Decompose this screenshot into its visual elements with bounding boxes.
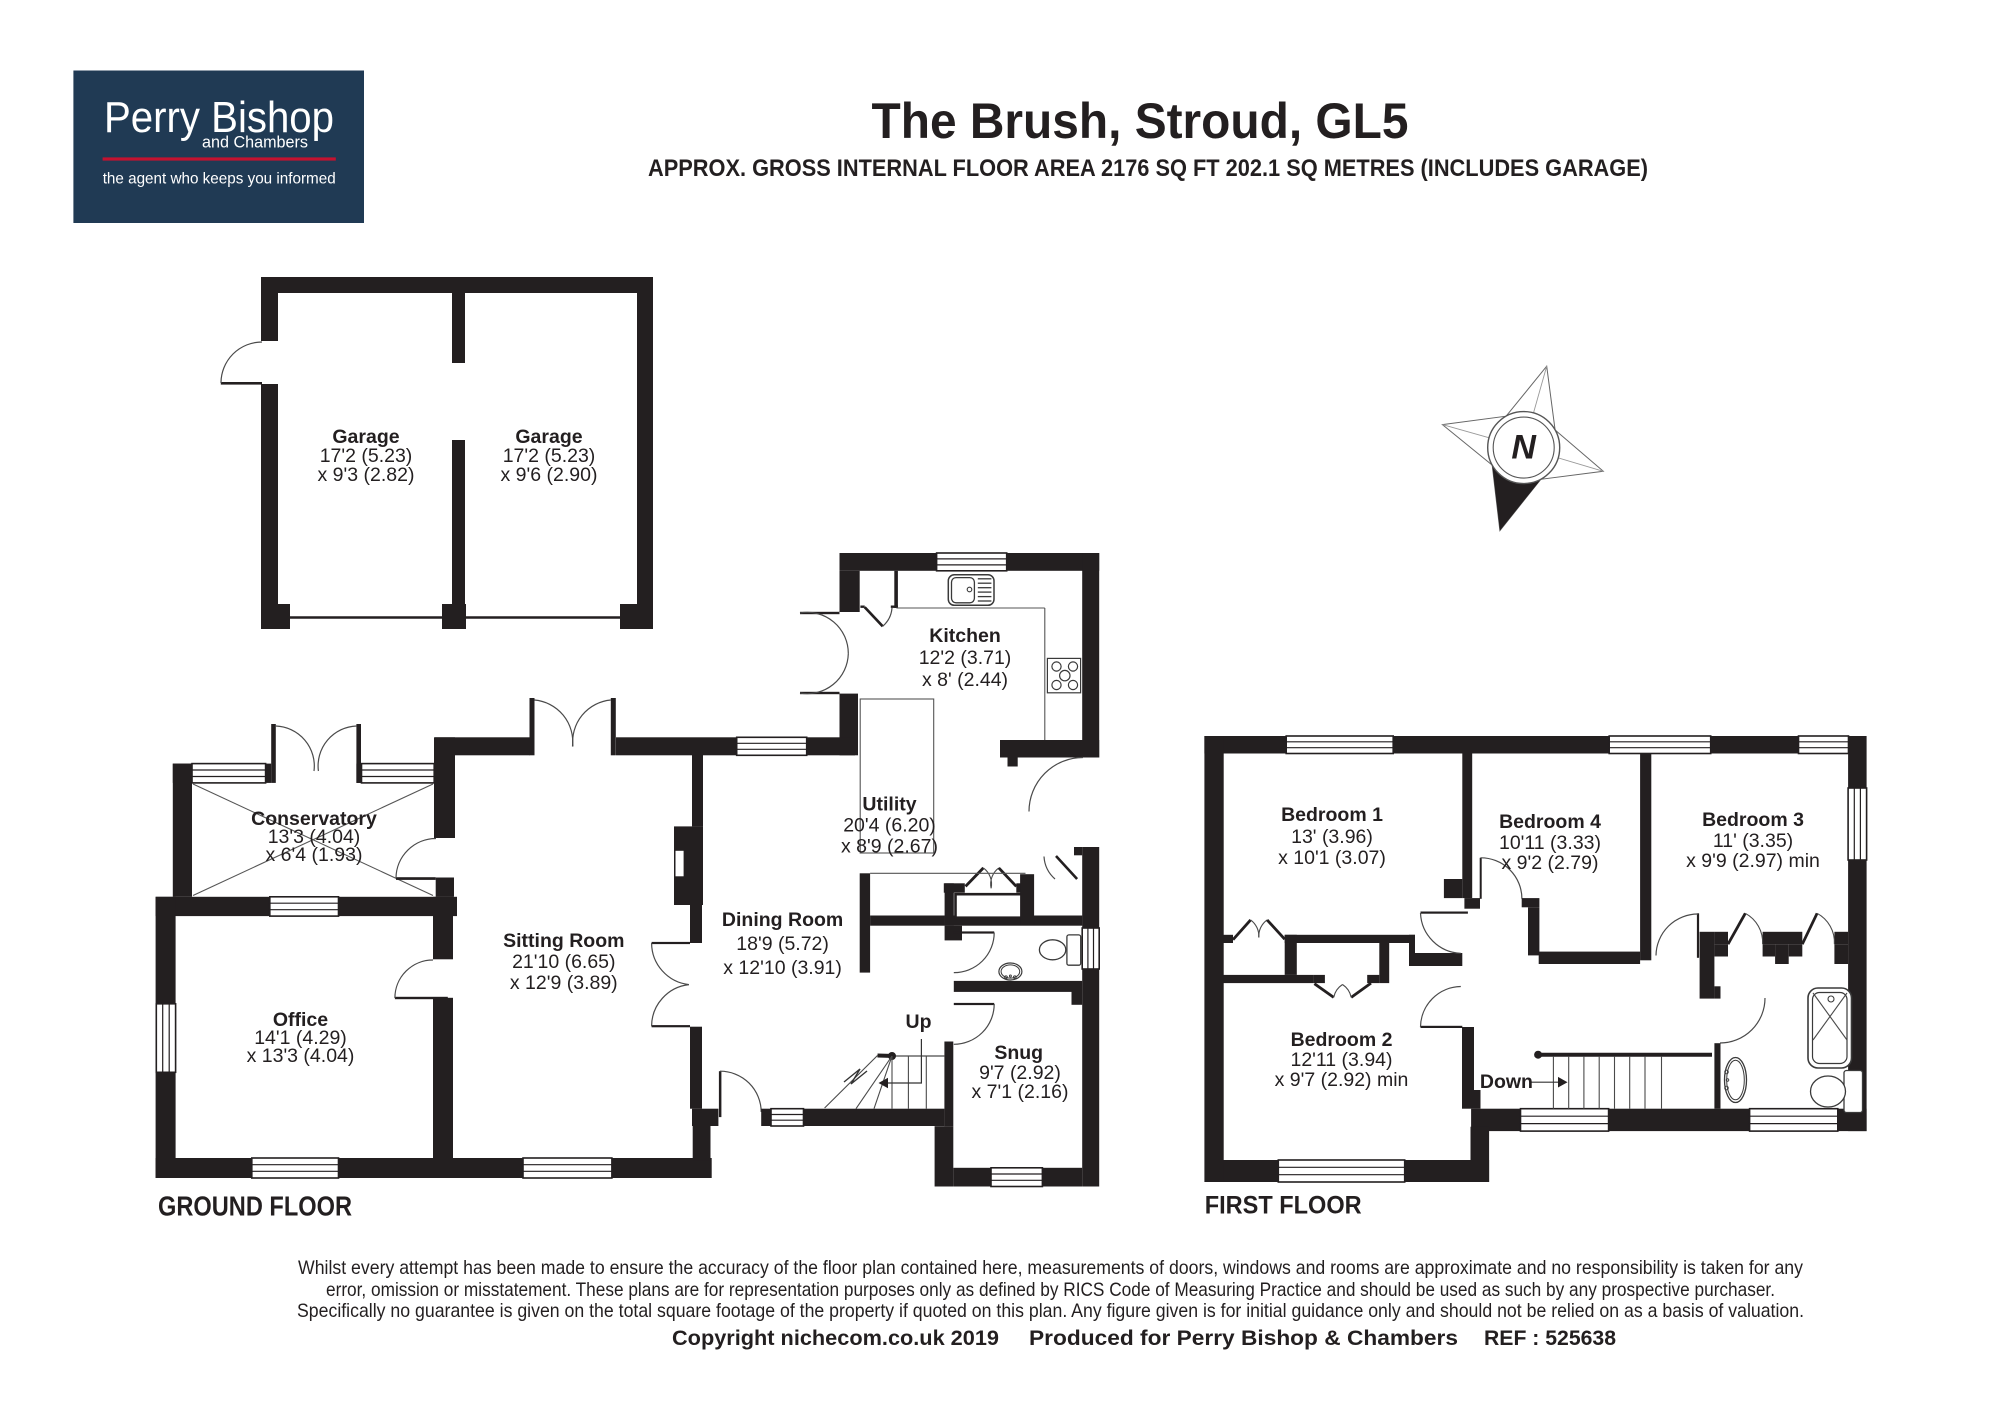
- svg-text:x 9'7 (2.92) min: x 9'7 (2.92) min: [1275, 1069, 1409, 1091]
- svg-text:Snug: Snug: [994, 1042, 1043, 1064]
- svg-text:Utility: Utility: [862, 794, 916, 816]
- svg-text:error, omission or misstatemen: error, omission or misstatement. These p…: [326, 1279, 1775, 1301]
- svg-text:21'10 (6.65): 21'10 (6.65): [512, 951, 615, 973]
- svg-text:18'9 (5.72): 18'9 (5.72): [736, 933, 829, 955]
- svg-text:Dining Room: Dining Room: [722, 909, 843, 931]
- svg-text:13' (3.96): 13' (3.96): [1291, 826, 1373, 848]
- svg-text:x 7'1 (2.16): x 7'1 (2.16): [972, 1081, 1069, 1103]
- svg-text:APPROX. GROSS INTERNAL FLOOR A: APPROX. GROSS INTERNAL FLOOR AREA 2176 S…: [648, 155, 1648, 182]
- svg-text:x 9'2 (2.79): x 9'2 (2.79): [1502, 852, 1599, 874]
- svg-text:x 8'9 (2.67): x 8'9 (2.67): [841, 836, 938, 858]
- svg-text:12'2 (3.71): 12'2 (3.71): [919, 647, 1012, 669]
- svg-text:x 10'1 (3.07): x 10'1 (3.07): [1278, 847, 1386, 869]
- svg-text:Bedroom 4: Bedroom 4: [1499, 811, 1601, 833]
- svg-text:11' (3.35): 11' (3.35): [1713, 830, 1793, 852]
- svg-text:FIRST FLOOR: FIRST FLOOR: [1205, 1192, 1362, 1220]
- svg-text:12'11 (3.94): 12'11 (3.94): [1290, 1049, 1392, 1071]
- svg-text:10'11 (3.33): 10'11 (3.33): [1499, 832, 1601, 854]
- svg-text:Copyright nichecom.co.uk 2019: Copyright nichecom.co.uk 2019: [672, 1327, 999, 1350]
- svg-text:x 12'9 (3.89): x 12'9 (3.89): [510, 972, 618, 994]
- svg-text:Produced for Perry Bishop & Ch: Produced for Perry Bishop & Chambers: [1029, 1327, 1458, 1350]
- svg-text:Kitchen: Kitchen: [929, 625, 1001, 647]
- svg-text:x 9'9 (2.97) min: x 9'9 (2.97) min: [1686, 850, 1820, 872]
- svg-text:x 12'10 (3.91): x 12'10 (3.91): [723, 957, 842, 979]
- svg-text:Down: Down: [1480, 1071, 1533, 1093]
- svg-text:Whilst every attempt has been: Whilst every attempt has been made to en…: [298, 1257, 1803, 1279]
- svg-text:x 6'4 (1.93): x 6'4 (1.93): [266, 844, 363, 866]
- svg-text:N: N: [1511, 429, 1537, 467]
- svg-text:x 9'6 (2.90): x 9'6 (2.90): [501, 464, 598, 486]
- svg-text:Bedroom 3: Bedroom 3: [1702, 809, 1804, 831]
- svg-text:Bedroom 2: Bedroom 2: [1291, 1029, 1393, 1051]
- svg-text:x 8' (2.44): x 8' (2.44): [922, 669, 1008, 691]
- svg-text:x 13'3 (4.04): x 13'3 (4.04): [247, 1045, 355, 1067]
- svg-text:and Chambers: and Chambers: [202, 133, 308, 152]
- svg-text:Sitting Room: Sitting Room: [503, 930, 624, 952]
- svg-text:Up: Up: [906, 1011, 932, 1033]
- svg-text:x 9'3 (2.82): x 9'3 (2.82): [318, 464, 415, 486]
- svg-text:the agent who keeps you inform: the agent who keeps you informed: [103, 171, 336, 188]
- svg-text:Specifically no guarantee is g: Specifically no guarantee is given on th…: [297, 1300, 1804, 1322]
- svg-text:REF : 525638: REF : 525638: [1484, 1327, 1616, 1350]
- svg-text:Bedroom 1: Bedroom 1: [1281, 804, 1383, 826]
- svg-text:GROUND FLOOR: GROUND FLOOR: [158, 1191, 352, 1222]
- svg-text:20'4 (6.20): 20'4 (6.20): [843, 815, 936, 837]
- svg-text:The Brush, Stroud, GL5: The Brush, Stroud, GL5: [872, 93, 1409, 149]
